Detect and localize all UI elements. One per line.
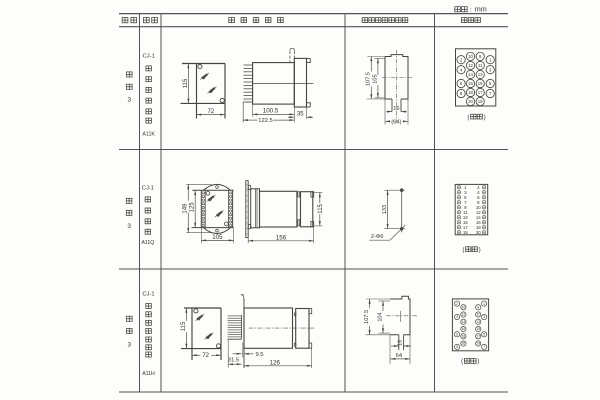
svg-text:): ) [479,246,481,253]
svg-text:100.5: 100.5 [263,107,279,114]
svg-text:9: 9 [477,306,479,310]
svg-text:18: 18 [468,90,473,95]
svg-text:CJ-1: CJ-1 [142,185,154,191]
svg-text:72: 72 [202,353,209,359]
svg-text:4: 4 [456,315,458,319]
svg-text:126: 126 [270,360,281,367]
svg-text:): ) [477,358,479,365]
svg-text:149: 149 [183,203,189,214]
svg-text:17: 17 [478,90,483,95]
svg-text:107.5: 107.5 [366,72,372,86]
svg-text::: : [470,7,472,14]
svg-text:20: 20 [468,99,473,104]
svg-text:2: 2 [456,302,458,306]
svg-text:35: 35 [297,111,304,117]
svg-text:104: 104 [377,312,383,321]
svg-text:11: 11 [478,63,483,68]
svg-text:14: 14 [468,72,473,77]
svg-text:3: 3 [483,315,485,319]
svg-text:12: 12 [462,313,466,317]
svg-text:15: 15 [476,327,480,331]
svg-text:6: 6 [456,333,458,337]
svg-text:107.5: 107.5 [364,310,370,324]
svg-text:): ) [484,114,486,121]
svg-text:72: 72 [207,109,214,115]
svg-text:12: 12 [468,63,473,68]
svg-text:13: 13 [478,72,483,77]
svg-text:16: 16 [398,340,404,346]
svg-text:133: 133 [382,205,388,214]
svg-text:1: 1 [483,302,485,306]
svg-text:14: 14 [462,320,466,324]
svg-text:115: 115 [318,203,324,213]
svg-text:18: 18 [462,334,466,338]
svg-text:5: 5 [483,333,485,337]
svg-text:mm: mm [475,5,487,14]
svg-text:17: 17 [476,334,480,338]
svg-text:2-Φ6: 2-Φ6 [371,234,384,240]
svg-text:125: 125 [189,202,195,213]
svg-text:16: 16 [468,81,473,86]
svg-text:122.5: 122.5 [258,118,273,124]
svg-text:19: 19 [463,230,468,235]
svg-text:8: 8 [456,345,458,349]
svg-text:19: 19 [476,342,480,346]
svg-text:11: 11 [476,313,480,317]
svg-text:156: 156 [276,234,287,241]
svg-text:7: 7 [483,345,485,349]
svg-text:13: 13 [476,320,480,324]
svg-text:A11H: A11H [142,371,155,377]
svg-text:3: 3 [127,223,131,230]
svg-text:20: 20 [476,230,481,235]
svg-text:105: 105 [212,234,223,241]
svg-text:A11Q: A11Q [141,240,154,246]
svg-text:CJ-1: CJ-1 [142,292,154,298]
svg-text:115: 115 [181,321,187,331]
svg-text:16: 16 [462,327,466,331]
svg-text:16: 16 [393,106,399,112]
svg-text:20: 20 [462,342,466,346]
svg-text:3: 3 [128,341,132,348]
svg-text:115: 115 [183,78,189,88]
svg-text:10: 10 [468,54,473,59]
svg-text:10: 10 [462,306,466,310]
svg-text:(64): (64) [391,120,401,126]
svg-text:15: 15 [478,81,483,86]
svg-text:19: 19 [478,99,483,104]
svg-text:64: 64 [396,353,403,359]
svg-text:9.5: 9.5 [255,352,263,358]
svg-text:105: 105 [372,74,378,83]
svg-text:31.5: 31.5 [228,358,239,364]
svg-text:3: 3 [128,96,132,103]
svg-text:CJ-1: CJ-1 [143,53,155,59]
svg-text:A11K: A11K [143,132,156,138]
